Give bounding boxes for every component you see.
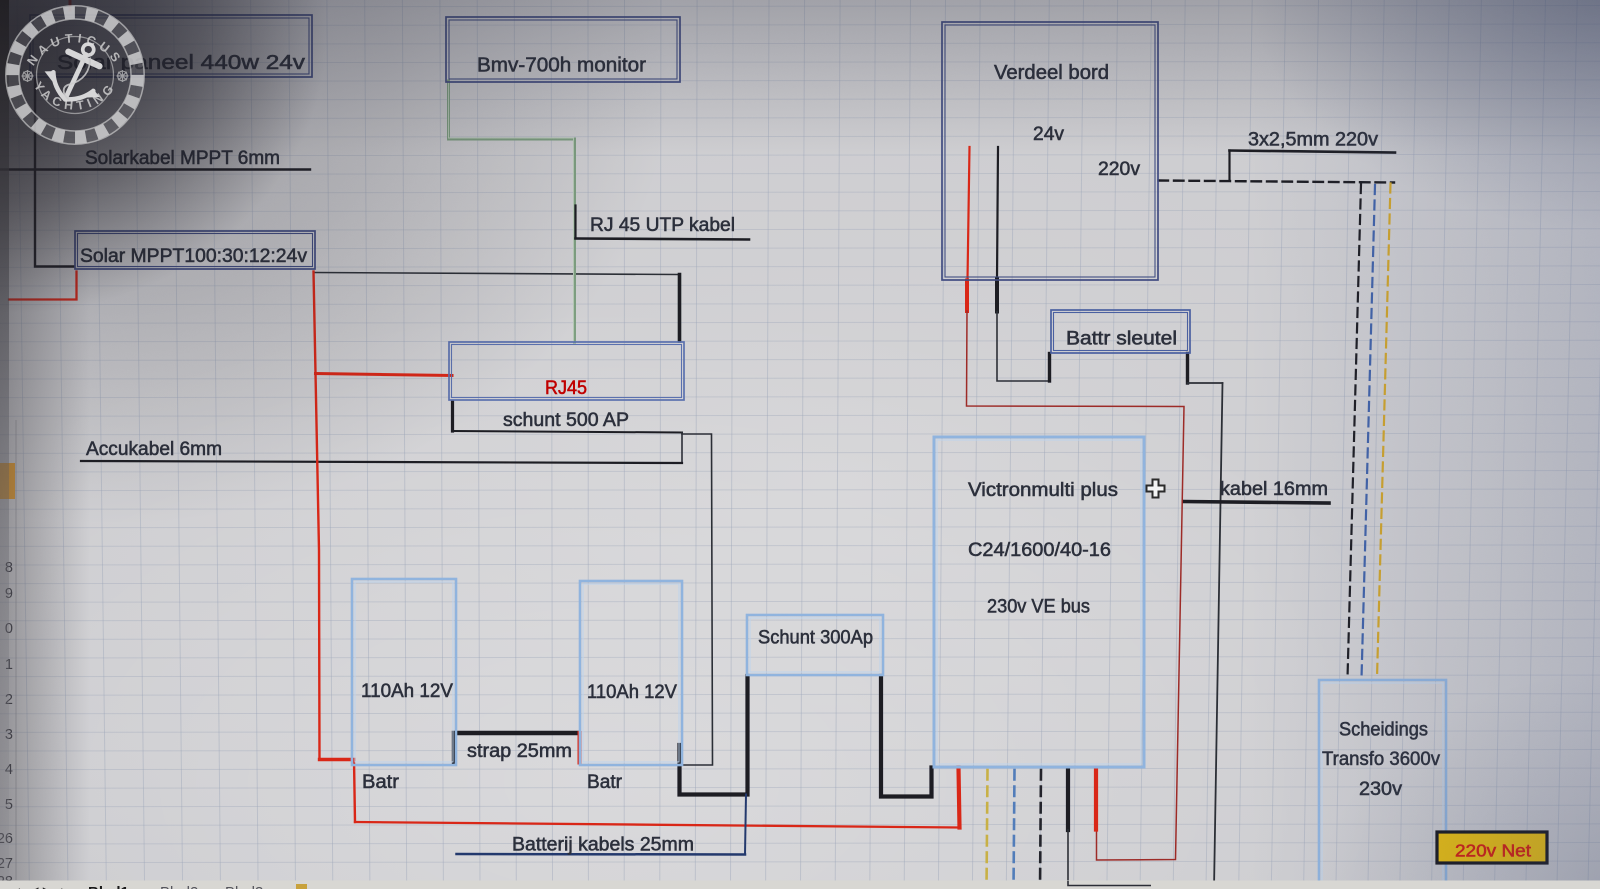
svg-text:Blad1: Blad1 bbox=[88, 884, 129, 889]
svg-text:◄ ◀ ▶ ►: ◄ ◀ ▶ ► bbox=[8, 884, 73, 889]
svg-text:Blad2: Blad2 bbox=[160, 884, 198, 889]
svg-text:Blad3: Blad3 bbox=[225, 884, 263, 889]
